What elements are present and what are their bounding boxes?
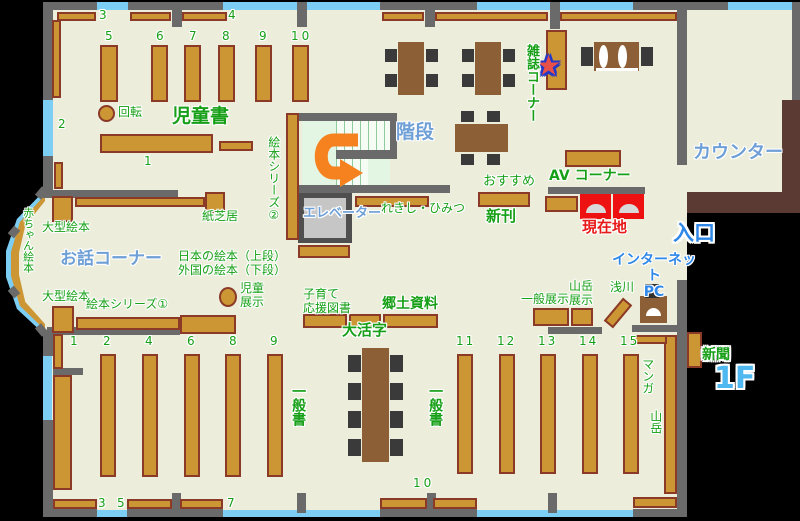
bookshelf-kamishibai bbox=[75, 197, 205, 207]
shelf-number-8: 8 bbox=[222, 29, 230, 43]
shelf-number-b9: 9 bbox=[270, 334, 278, 348]
chair bbox=[461, 154, 474, 165]
sofa-cushion bbox=[618, 45, 627, 68]
shelf-number-5: 5 bbox=[105, 29, 113, 43]
bookshelf bbox=[180, 315, 236, 334]
label-mountain-exhibit: 山岳 展示 bbox=[569, 280, 593, 308]
label-recommended: おすすめ bbox=[483, 175, 535, 190]
bookshelf bbox=[100, 354, 116, 477]
label-entrance: 入口 bbox=[673, 221, 715, 245]
chair bbox=[462, 74, 474, 87]
bookshelf-kosodate bbox=[303, 314, 347, 328]
bookshelf bbox=[435, 12, 548, 21]
bookshelf bbox=[130, 12, 171, 21]
bookshelf bbox=[57, 12, 96, 21]
shelf-number-7: 7 bbox=[189, 29, 197, 43]
wall-pillar bbox=[297, 493, 306, 513]
window bbox=[728, 2, 792, 10]
chair bbox=[385, 49, 397, 62]
chair bbox=[503, 74, 515, 87]
label-counter: カウンター bbox=[693, 143, 783, 164]
label-elevator: エレベーター bbox=[303, 207, 381, 222]
label-av-corner: AV コーナー bbox=[549, 168, 631, 184]
shelf-number-9: 9 bbox=[259, 29, 267, 43]
bookshelf bbox=[267, 354, 283, 477]
bookshelf-ogata-ehon bbox=[52, 196, 73, 222]
bookshelf bbox=[218, 45, 235, 102]
chair bbox=[348, 439, 361, 456]
label-stairs: 階段 bbox=[396, 122, 434, 144]
shelf-number-b10: 10 bbox=[413, 476, 434, 490]
wall bbox=[792, 2, 800, 102]
chair bbox=[426, 74, 438, 87]
bookshelf bbox=[142, 354, 158, 477]
chair bbox=[426, 49, 438, 62]
bookshelf bbox=[52, 20, 61, 98]
shelf-number-b4: 4 bbox=[145, 334, 153, 348]
label-story-corner: お話コーナー bbox=[60, 250, 162, 270]
label-picture-book-series-1: 絵本シリーズ① bbox=[86, 298, 168, 312]
label-local-materials: 郷土資料 bbox=[382, 296, 438, 312]
counter-desk bbox=[782, 100, 800, 194]
wall-interior bbox=[548, 187, 645, 194]
window bbox=[43, 356, 52, 420]
wall bbox=[43, 509, 97, 517]
bookshelf bbox=[100, 45, 118, 102]
chair bbox=[385, 74, 397, 87]
shelf-number-b6: 6 bbox=[187, 334, 195, 348]
wall bbox=[677, 280, 687, 517]
chair bbox=[348, 383, 361, 400]
bookshelf bbox=[53, 334, 63, 369]
label-picture-book-series-2: 絵本シリーズ② bbox=[266, 136, 280, 241]
label-floor-1f: 1F bbox=[714, 362, 755, 397]
chair bbox=[461, 111, 474, 122]
counter-desk bbox=[687, 192, 800, 213]
label-history-secrets: れきし・ひみつ bbox=[381, 202, 465, 216]
wall bbox=[43, 420, 53, 512]
label-large-picture-books-bottom: 大型絵本 bbox=[42, 290, 90, 304]
wall-pillar bbox=[297, 2, 307, 27]
shelf-number-4: 4 bbox=[228, 8, 236, 22]
chair bbox=[390, 439, 403, 456]
shelf-number-6: 6 bbox=[156, 29, 164, 43]
study-table bbox=[362, 348, 389, 462]
sofa-cushion bbox=[599, 45, 608, 68]
reading-table bbox=[475, 42, 501, 95]
chair bbox=[641, 47, 653, 66]
wall-pillar bbox=[550, 2, 560, 29]
shelf-number-10: 10 bbox=[291, 29, 312, 43]
bookshelf bbox=[225, 354, 241, 477]
library-floor-map: ★ 児童書 回転 紙芝居 大型絵本 大型絵本 赤ちゃん絵本 お話コーナー 絵本シ… bbox=[0, 0, 800, 521]
chair bbox=[348, 355, 361, 372]
gate-sensor bbox=[586, 204, 606, 213]
bookshelf bbox=[292, 45, 309, 102]
shelf-number-b1: 1 bbox=[70, 334, 78, 348]
bookshelf bbox=[184, 354, 200, 477]
label-asakawa: 浅川 bbox=[610, 281, 634, 295]
bookshelf-ogata-ehon bbox=[52, 306, 74, 333]
bookshelf bbox=[633, 497, 677, 508]
shelf-number-b7: 7 bbox=[227, 496, 235, 510]
security-gate bbox=[613, 194, 644, 219]
label-japanese-picture-books: 日本の絵本（上段） bbox=[178, 250, 286, 264]
wall bbox=[43, 156, 53, 194]
bookshelf bbox=[100, 134, 213, 153]
bookshelf bbox=[380, 498, 427, 509]
bookshelf-ehon-series1 bbox=[76, 317, 180, 330]
stairs-direction-arrow bbox=[302, 128, 366, 188]
bookshelf bbox=[184, 45, 201, 102]
reading-table bbox=[455, 124, 508, 152]
chair bbox=[581, 47, 593, 66]
wall-pillar bbox=[172, 2, 182, 27]
shelf-number-b5: 5 bbox=[117, 496, 125, 510]
security-gate bbox=[580, 194, 611, 219]
bookshelf bbox=[457, 354, 473, 474]
label-large-picture-books-top: 大型絵本 bbox=[42, 221, 90, 235]
general-exhibit-shelf bbox=[533, 308, 569, 326]
shelf-number-b11: 11 bbox=[456, 334, 475, 348]
star-marker: ★ bbox=[536, 52, 561, 80]
label-baby-picture-books: 赤ちゃん絵本 bbox=[21, 207, 34, 307]
shelf-number-1: 1 bbox=[144, 154, 152, 168]
mountain-exhibit-shelf bbox=[571, 308, 593, 326]
chair bbox=[462, 49, 474, 62]
window bbox=[97, 510, 127, 517]
children-display-stand bbox=[219, 287, 237, 307]
bookshelf bbox=[540, 354, 556, 474]
wall-interior bbox=[53, 368, 83, 375]
bookshelf bbox=[182, 12, 227, 21]
shelf-number-2: 2 bbox=[58, 117, 66, 131]
wall-pillar bbox=[425, 2, 435, 27]
bookshelf-kyodo bbox=[383, 314, 438, 328]
bookshelf bbox=[255, 45, 272, 102]
bookshelf bbox=[560, 12, 677, 21]
chair bbox=[487, 154, 500, 165]
shelf-number-b2: 2 bbox=[103, 334, 111, 348]
bookshelf bbox=[623, 354, 639, 474]
window bbox=[43, 100, 53, 156]
label-kamishibai: 紙芝居 bbox=[202, 210, 238, 224]
shelf-number-b3: 3 bbox=[98, 496, 106, 510]
stair-wall bbox=[296, 113, 397, 121]
label-manga: マンガ bbox=[640, 358, 654, 406]
label-new-books: 新刊 bbox=[486, 208, 516, 225]
label-general-exhibit: 一般展示 bbox=[521, 293, 569, 307]
newspaper-rack bbox=[687, 332, 702, 368]
bookshelf bbox=[127, 499, 172, 509]
wall-pillar bbox=[548, 493, 557, 513]
shelf-number-b12: 12 bbox=[497, 334, 516, 348]
label-large-print: 大活字 bbox=[342, 322, 387, 339]
label-general-books-left: 一般書 bbox=[290, 384, 306, 439]
shelf-number-b14: 14 bbox=[579, 334, 598, 348]
bookshelf bbox=[499, 354, 515, 474]
bookshelf bbox=[151, 45, 168, 102]
label-current-location: 現在地 bbox=[582, 219, 627, 236]
wall-interior bbox=[632, 325, 687, 332]
rotating-rack bbox=[98, 105, 115, 122]
label-magazine-corner: 雑誌コーナー bbox=[523, 44, 538, 139]
chair bbox=[390, 411, 403, 428]
chair bbox=[348, 411, 361, 428]
label-parenting-books: 子育て 応援図書 bbox=[303, 288, 351, 316]
label-children-display: 児童 展示 bbox=[240, 282, 264, 310]
shelf-number-3: 3 bbox=[99, 8, 107, 22]
chair bbox=[503, 49, 515, 62]
chair bbox=[390, 383, 403, 400]
label-foreign-picture-books: 外国の絵本（下段） bbox=[178, 264, 286, 278]
reading-table bbox=[398, 42, 424, 95]
bookshelf bbox=[219, 141, 253, 151]
new-books-shelf bbox=[478, 192, 530, 207]
gate-sensor bbox=[619, 204, 639, 213]
bookshelf bbox=[53, 375, 72, 490]
bookshelf bbox=[545, 196, 578, 212]
sofa-base bbox=[596, 68, 638, 71]
chair bbox=[390, 355, 403, 372]
bookshelf-manga-sangaku bbox=[664, 335, 677, 494]
bookshelf bbox=[54, 162, 63, 189]
bookshelf bbox=[298, 245, 350, 258]
bookshelf-ehon-series2 bbox=[286, 113, 299, 240]
bookshelf bbox=[382, 12, 424, 21]
label-rotating-rack: 回転 bbox=[118, 106, 142, 120]
wall-counter-room bbox=[677, 2, 687, 165]
shelf-number-b8: 8 bbox=[229, 334, 237, 348]
av-corner-shelf bbox=[565, 150, 621, 167]
wall-interior bbox=[548, 327, 602, 334]
label-mountain: 山岳 bbox=[648, 410, 662, 444]
shelf-number-b15: 15 bbox=[620, 334, 639, 348]
label-general-books-right: 一般書 bbox=[427, 384, 443, 439]
label-childrens-books: 児童書 bbox=[172, 106, 229, 128]
chair bbox=[487, 111, 500, 122]
bookshelf bbox=[582, 354, 598, 474]
shelf-number-b13: 13 bbox=[538, 334, 557, 348]
bookshelf bbox=[53, 499, 97, 509]
bookshelf bbox=[433, 498, 477, 509]
bookshelf bbox=[180, 499, 223, 509]
